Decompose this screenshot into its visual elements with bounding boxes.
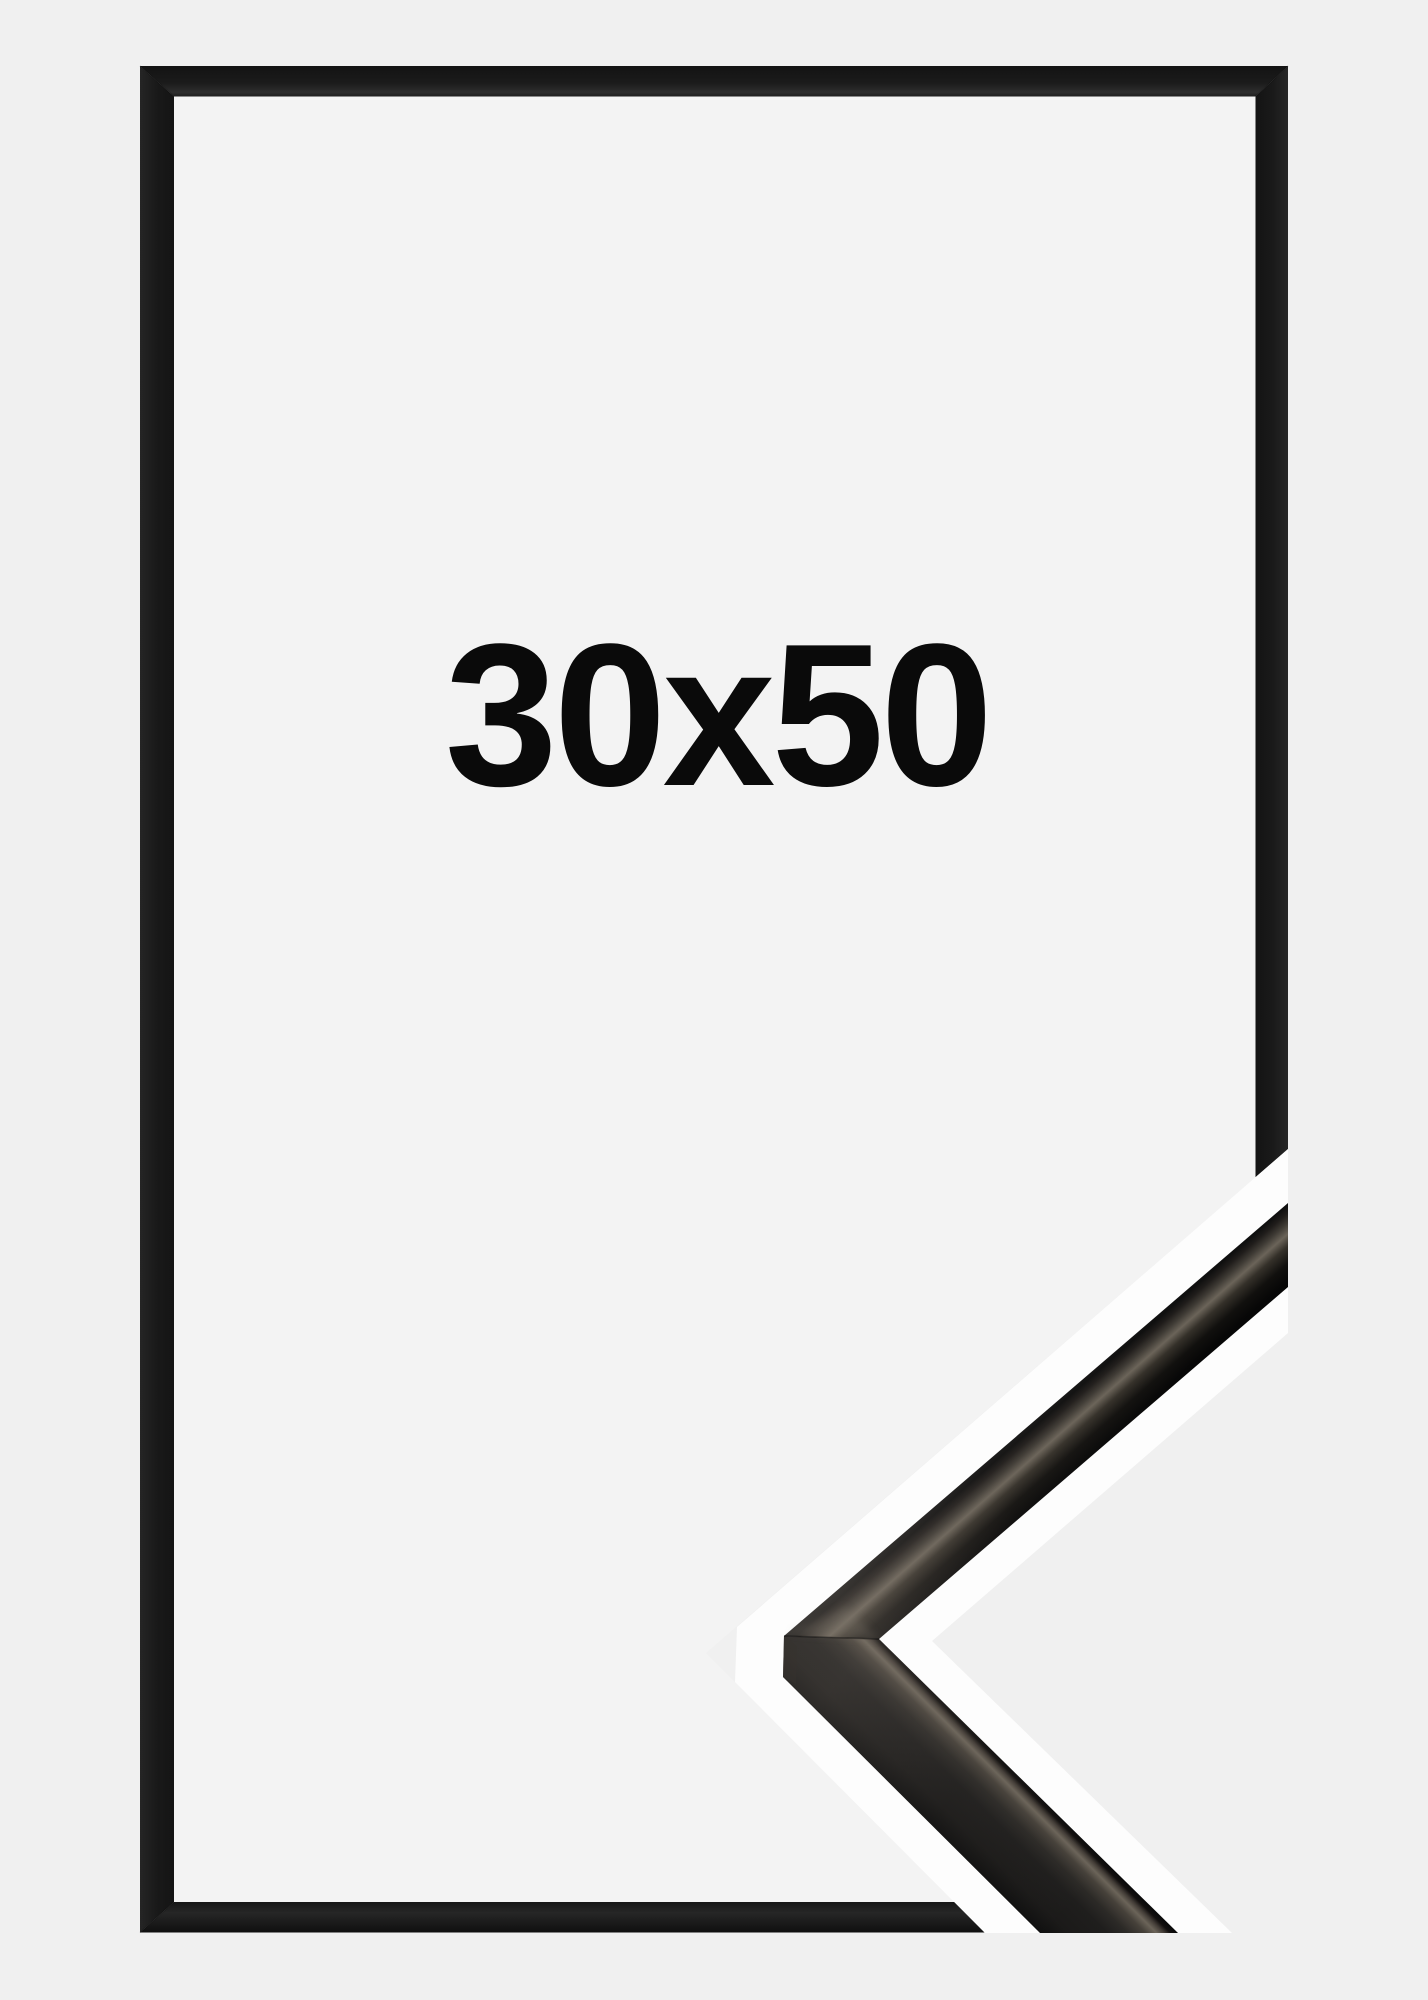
svg-text:30x50: 30x50 bbox=[445, 602, 990, 829]
